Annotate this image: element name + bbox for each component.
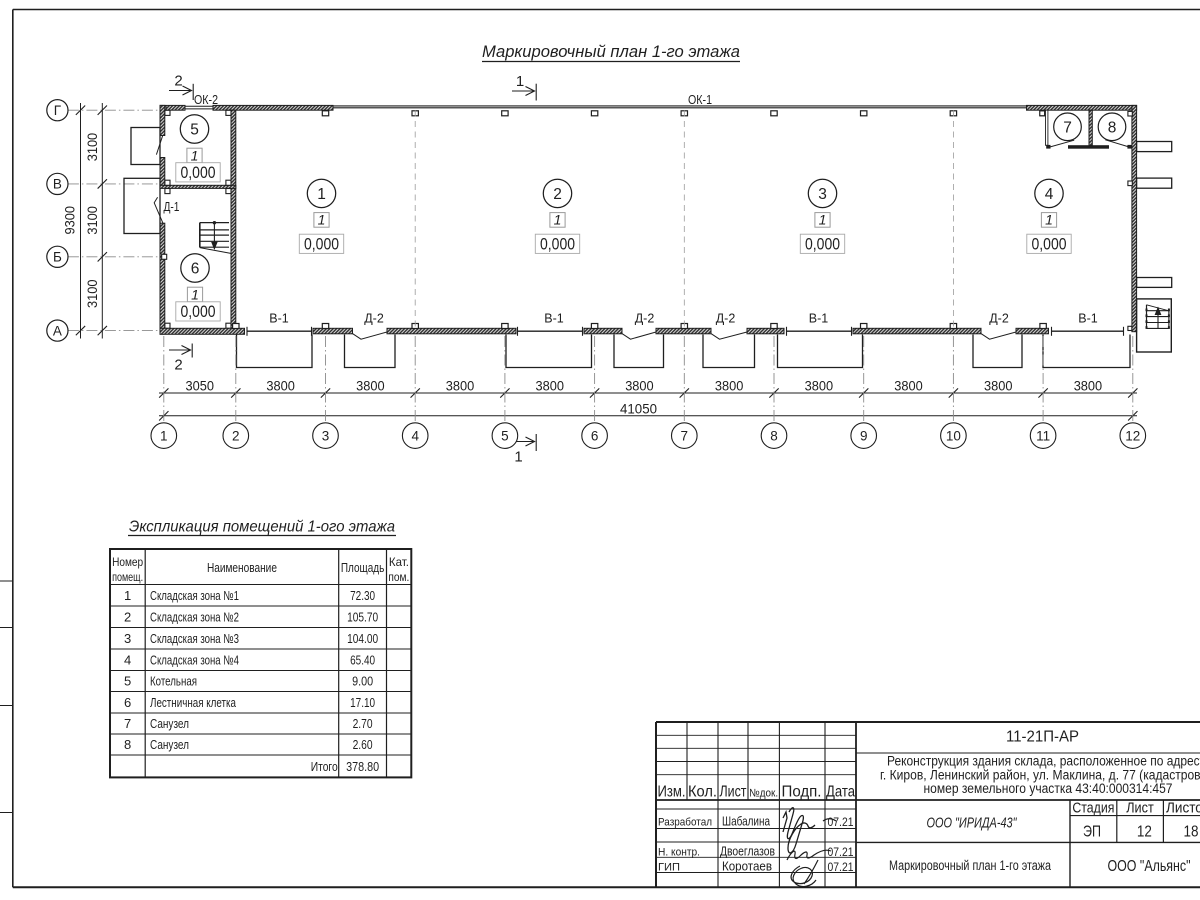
svg-text:2: 2 (553, 186, 562, 203)
svg-text:Наименование: Наименование (207, 560, 277, 575)
svg-text:В-1: В-1 (269, 312, 289, 326)
svg-text:6: 6 (124, 695, 131, 710)
svg-text:В-1: В-1 (809, 312, 829, 326)
svg-text:Складская зона №1: Складская зона №1 (150, 588, 239, 603)
svg-text:Стадия: Стадия (1072, 800, 1114, 816)
svg-text:Кат.: Кат. (389, 555, 409, 569)
svg-text:2: 2 (124, 609, 131, 624)
svg-text:2.60: 2.60 (353, 737, 373, 752)
svg-text:Разработал: Разработал (658, 817, 712, 829)
svg-text:12: 12 (1125, 428, 1140, 443)
svg-text:Д-1: Д-1 (164, 200, 180, 214)
svg-text:5: 5 (190, 121, 199, 138)
svg-text:10: 10 (946, 428, 961, 443)
svg-text:Двоеглазов: Двоеглазов (720, 845, 775, 859)
svg-text:ГИП: ГИП (658, 862, 680, 874)
svg-text:0,000: 0,000 (1032, 235, 1067, 253)
svg-text:Коротаев: Коротаев (722, 860, 772, 874)
svg-text:№док.: №док. (749, 788, 778, 800)
svg-text:41050: 41050 (620, 401, 657, 416)
svg-text:ОК-2: ОК-2 (194, 93, 218, 107)
svg-text:Лестничная клетка: Лестничная клетка (150, 695, 237, 710)
svg-text:2: 2 (174, 73, 182, 90)
svg-text:Экспликация помещений 1-ого эт: Экспликация помещений 1-ого этажа (129, 519, 395, 536)
svg-text:Кол.: Кол. (688, 784, 717, 801)
svg-text:07.21: 07.21 (828, 847, 854, 859)
svg-text:В-1: В-1 (544, 312, 564, 326)
svg-text:3800: 3800 (625, 379, 654, 394)
svg-text:3800: 3800 (984, 379, 1013, 394)
svg-text:Изм.: Изм. (658, 784, 686, 801)
svg-text:8: 8 (770, 428, 778, 443)
svg-text:Д-2: Д-2 (635, 312, 655, 326)
svg-text:Лист: Лист (720, 784, 747, 801)
svg-text:8: 8 (124, 737, 131, 752)
svg-text:1: 1 (124, 588, 131, 603)
svg-text:104.00: 104.00 (347, 631, 378, 646)
svg-text:3800: 3800 (356, 379, 385, 394)
svg-text:3: 3 (322, 428, 330, 443)
svg-text:3100: 3100 (85, 206, 100, 235)
svg-text:6: 6 (591, 428, 599, 443)
svg-text:1: 1 (191, 147, 199, 163)
svg-text:4: 4 (411, 428, 419, 443)
svg-text:0,000: 0,000 (805, 235, 840, 253)
svg-text:Маркировочный план 1-го этажа: Маркировочный план 1-го этажа (482, 42, 740, 61)
svg-text:5: 5 (124, 674, 131, 689)
svg-text:В-1: В-1 (1078, 312, 1098, 326)
svg-text:4: 4 (124, 652, 131, 667)
svg-text:3800: 3800 (446, 379, 475, 394)
svg-text:1: 1 (317, 186, 326, 203)
svg-text:В: В (53, 177, 62, 192)
svg-text:1: 1 (554, 212, 562, 228)
svg-text:3800: 3800 (894, 379, 923, 394)
svg-text:9300: 9300 (63, 206, 78, 235)
svg-text:Шабалина: Шабалина (722, 815, 770, 829)
svg-text:А: А (53, 323, 62, 338)
svg-text:105.70: 105.70 (347, 609, 378, 624)
svg-text:Дата: Дата (826, 784, 855, 801)
svg-text:Котельная: Котельная (150, 674, 197, 689)
svg-text:пом.: пом. (388, 570, 409, 584)
svg-text:1: 1 (191, 286, 199, 302)
svg-text:0,000: 0,000 (181, 303, 216, 321)
svg-text:0,000: 0,000 (304, 235, 339, 253)
svg-text:9: 9 (860, 428, 868, 443)
svg-text:ООО "ИРИДА-43": ООО "ИРИДА-43" (927, 816, 1018, 832)
svg-text:Складская зона №4: Складская зона №4 (150, 652, 239, 667)
svg-text:18: 18 (1184, 824, 1199, 841)
svg-text:8: 8 (1108, 119, 1117, 136)
svg-text:3100: 3100 (85, 279, 100, 308)
svg-text:Лист: Лист (1126, 800, 1154, 816)
svg-text:72.30: 72.30 (350, 588, 375, 603)
svg-text:3: 3 (124, 631, 131, 646)
svg-text:Н. контр.: Н. контр. (658, 847, 700, 859)
svg-text:1: 1 (516, 73, 524, 90)
svg-text:378.80: 378.80 (346, 759, 379, 774)
svg-text:3800: 3800 (1074, 379, 1103, 394)
svg-text:Д-2: Д-2 (364, 312, 384, 326)
svg-text:1: 1 (160, 428, 168, 443)
svg-text:0,000: 0,000 (540, 235, 575, 253)
svg-text:3050: 3050 (186, 379, 215, 394)
svg-text:7: 7 (124, 716, 131, 731)
svg-text:номер земельного участка 43:40: номер земельного участка 43:40:000314:45… (924, 781, 1173, 797)
svg-text:0,000: 0,000 (181, 164, 216, 182)
svg-text:ОК-1: ОК-1 (688, 93, 712, 107)
svg-text:7: 7 (681, 428, 689, 443)
svg-text:Номер: Номер (112, 555, 143, 569)
svg-text:3800: 3800 (536, 379, 565, 394)
svg-text:3800: 3800 (715, 379, 744, 394)
svg-text:3100: 3100 (85, 133, 100, 162)
svg-text:Санузел: Санузел (150, 716, 189, 731)
svg-text:Итого: Итого (311, 759, 338, 774)
svg-text:ЭП: ЭП (1083, 824, 1101, 841)
svg-text:Д-2: Д-2 (716, 312, 736, 326)
svg-text:3800: 3800 (805, 379, 834, 394)
svg-text:Санузел: Санузел (150, 737, 189, 752)
svg-text:Складская зона №2: Складская зона №2 (150, 609, 239, 624)
svg-text:65.40: 65.40 (350, 652, 375, 667)
svg-text:Г: Г (54, 103, 62, 118)
svg-text:3800: 3800 (266, 379, 295, 394)
svg-text:11-21П-АР: 11-21П-АР (1006, 729, 1079, 746)
svg-text:2: 2 (232, 428, 240, 443)
svg-text:07.21: 07.21 (828, 862, 854, 874)
svg-text:5: 5 (501, 428, 509, 443)
svg-text:9.00: 9.00 (352, 674, 373, 689)
svg-text:1: 1 (819, 212, 827, 228)
svg-text:17.10: 17.10 (350, 695, 375, 710)
svg-text:3: 3 (818, 186, 827, 203)
svg-text:6: 6 (191, 260, 200, 277)
svg-text:Складская зона №3: Складская зона №3 (150, 631, 239, 646)
svg-text:1: 1 (514, 449, 522, 466)
svg-text:11: 11 (1036, 428, 1050, 443)
svg-text:помещ.: помещ. (112, 570, 143, 584)
svg-text:Подп.: Подп. (782, 784, 822, 801)
svg-text:Площадь: Площадь (341, 560, 385, 575)
svg-text:4: 4 (1045, 186, 1054, 203)
svg-text:2.70: 2.70 (353, 716, 373, 731)
svg-text:Б: Б (53, 250, 62, 265)
svg-text:7: 7 (1063, 119, 1072, 136)
svg-text:1: 1 (318, 212, 326, 228)
svg-text:ООО "Альянс": ООО "Альянс" (1108, 858, 1191, 875)
svg-text:1: 1 (1045, 212, 1053, 228)
svg-text:2: 2 (174, 357, 182, 374)
svg-text:Листов: Листов (1166, 800, 1200, 816)
svg-text:12: 12 (1137, 824, 1152, 841)
svg-text:Маркировочный план 1-го этажа: Маркировочный план 1-го этажа (889, 858, 1051, 873)
svg-text:Д-2: Д-2 (989, 312, 1009, 326)
